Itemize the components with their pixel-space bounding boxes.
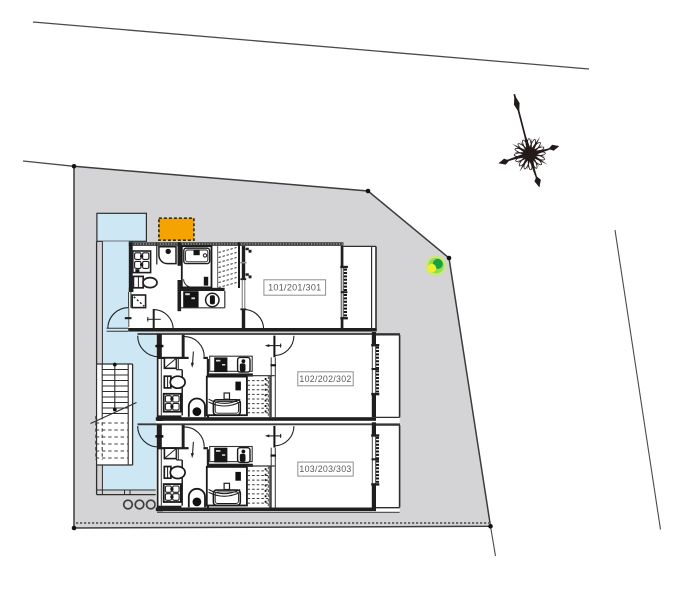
svg-text:101/201/301: 101/201/301 [268, 283, 321, 293]
svg-text:103/203/303: 103/203/303 [299, 464, 351, 474]
svg-text:102/202/302: 102/202/302 [299, 374, 351, 384]
